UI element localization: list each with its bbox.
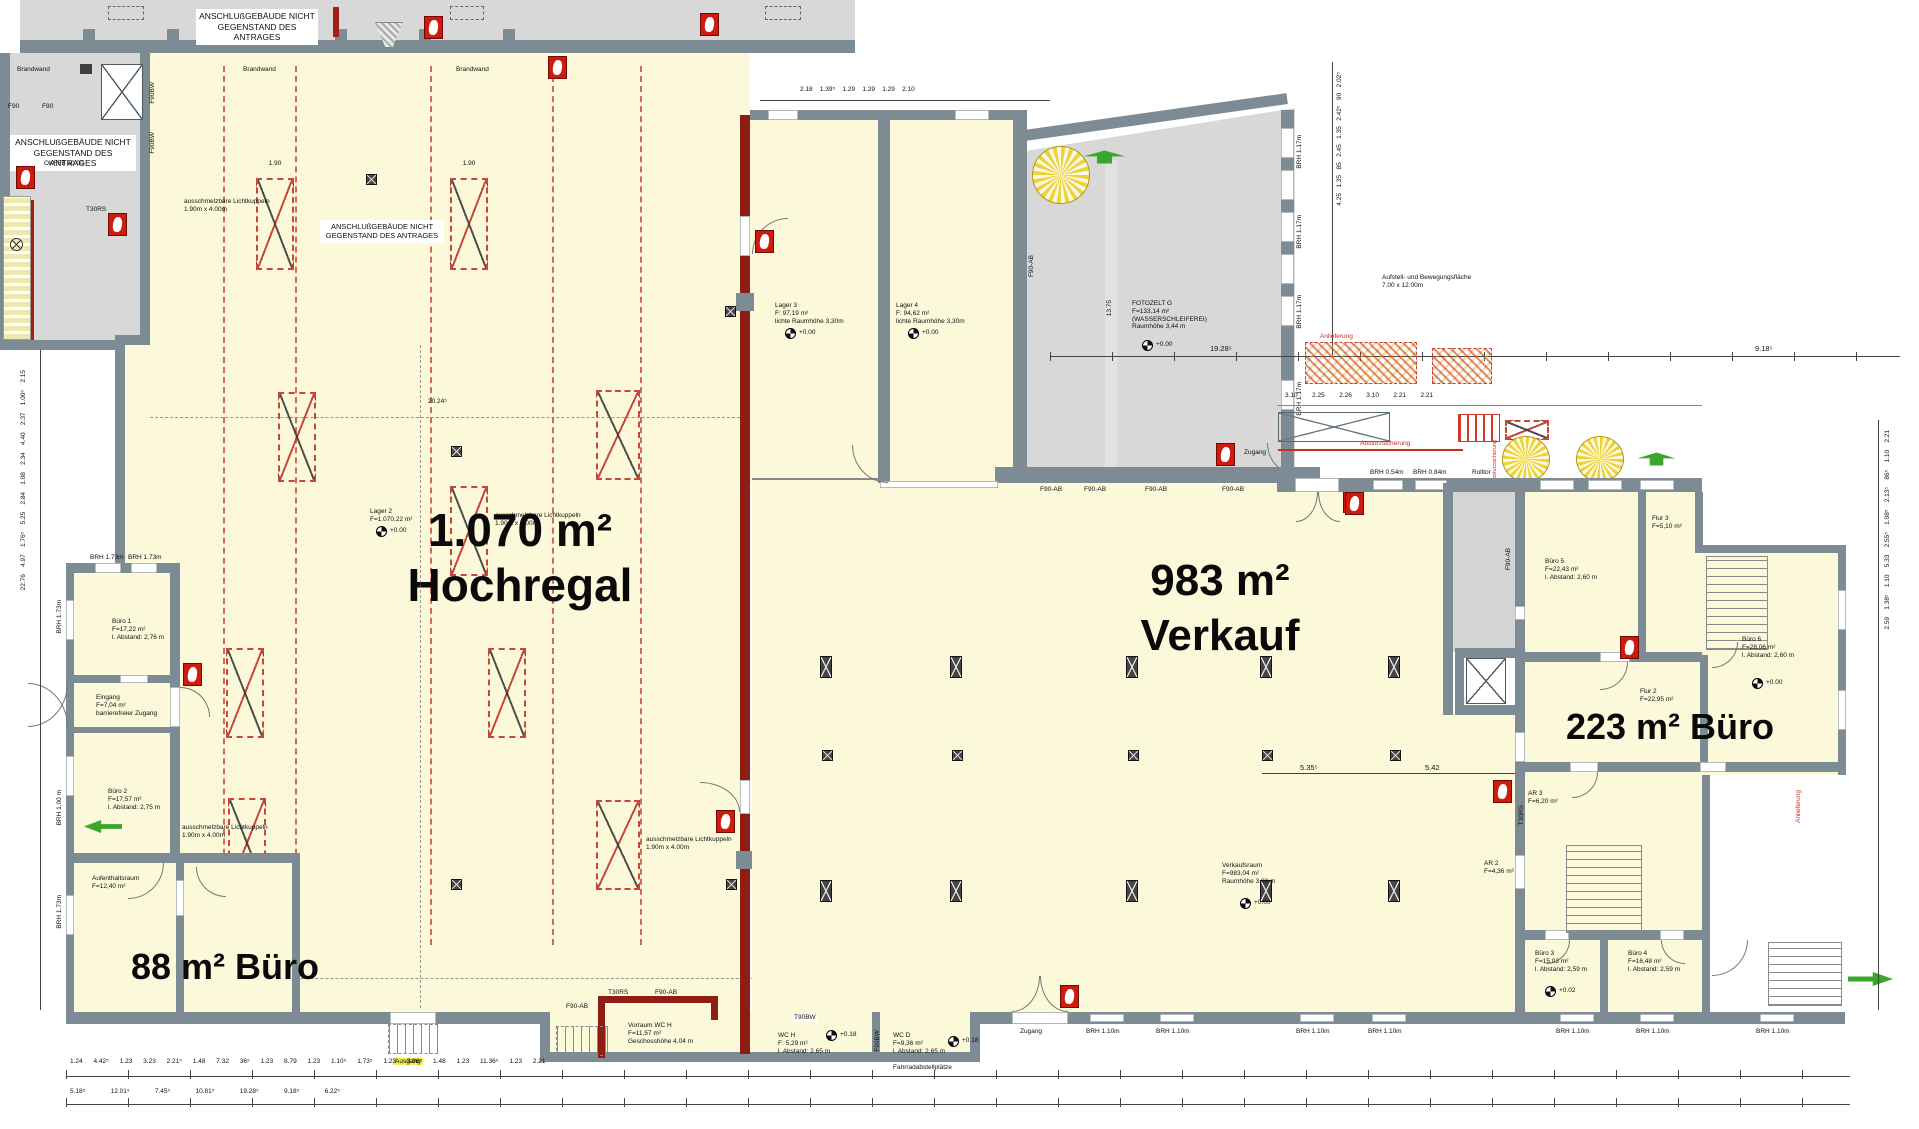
fire-extinguisher-icon [755, 230, 774, 253]
level-mark-icon [908, 328, 919, 339]
room-label-buero3: Büro 3 F=15,03 m² l. Abstand: 2,59 m [1535, 950, 1587, 973]
wing-wall [1702, 775, 1710, 1012]
window-label: BRH 1.10m [1296, 1028, 1330, 1036]
wall-pillar [736, 293, 754, 311]
anlieferung-label: Anlieferung [1320, 333, 1353, 341]
hatched-zone [3, 196, 31, 340]
wing-wall [1520, 762, 1845, 772]
dim-chain-bottom-1: 1.24 4.42⁵ 1.23 3.23 2.21⁵ 1.48 7.32 36⁵… [70, 1058, 545, 1066]
suite-north-wall [66, 563, 180, 573]
level-mark-icon [1545, 986, 1556, 997]
room-label-flur2: Flur 2 F=22,95 m² [1640, 688, 1673, 704]
area-label-hochregal-name: Hochregal [350, 558, 690, 612]
window-label: BRH 0.84m [1413, 469, 1447, 477]
fire-extinguisher-icon [1216, 443, 1235, 466]
window [1160, 1014, 1194, 1022]
wall-rating-label: T90BW [793, 1014, 817, 1022]
room-label-buero1: Büro 1 F=17,22 m² l. Abstand: 2,76 m [112, 618, 164, 641]
dim-line [66, 1076, 1850, 1077]
room-label-aufenthalt: Aufenthaltsraum F=12,40 m² [92, 875, 139, 891]
wc-wall [970, 1012, 980, 1060]
window [1838, 590, 1846, 630]
wing-wall [1638, 492, 1646, 652]
zugang-label: Zugang [1244, 449, 1266, 457]
window [1760, 1014, 1794, 1022]
wall-rating-label: F90 [42, 103, 53, 111]
walkway-south-wall [1277, 478, 1702, 492]
hatched-delivery-zone [1432, 348, 1492, 384]
vorraum-fire-wall [598, 996, 718, 1003]
column-icon [1390, 750, 1401, 761]
column-pair-icon [950, 656, 962, 678]
wing-wall [1695, 545, 1845, 553]
wall-rating-label: F90-AB [1222, 486, 1244, 494]
wall-rating-label: F90-AB [655, 989, 677, 997]
lager-partition-wall [878, 110, 890, 483]
light-dome-icon [226, 648, 264, 738]
vorraum-fire-wall [711, 996, 718, 1020]
room-partition [74, 853, 300, 863]
window [66, 895, 74, 935]
window [1588, 480, 1622, 490]
window [1540, 480, 1574, 490]
fire-wall-stub [333, 7, 339, 37]
room-label-wch: WC H F: 5,29 m² l. Abstand: 2,65 m [778, 1032, 830, 1055]
door-opening [740, 780, 750, 814]
wall-rating-label: F90BW [874, 1030, 882, 1052]
window-label: BRH 1.73m [90, 554, 124, 562]
wing-wall [1600, 935, 1608, 1012]
dim-chain: 3.10 2.25 2.26 3.10 2.21 2.21 [1285, 392, 1433, 400]
wall-pillar [83, 29, 95, 41]
wall-rating-label: F90BW [149, 82, 157, 104]
lichtkuppel-label: ausschmelzbare Lichtkuppeln 1.90m x 4.00… [182, 824, 268, 840]
hall-floor [300, 853, 750, 1012]
walkway-north-line [1277, 405, 1702, 406]
wall-rating-label: F90-AB [1145, 486, 1167, 494]
room-label-verkauf: Verkaufsraum F=983,04 m² Raumhöhe 3,00 m [1222, 862, 1275, 885]
zugang-label: Zugang [1020, 1028, 1042, 1036]
room-label-flur3: Flur 3 F=5,10 m² [1652, 515, 1682, 531]
area-label-buero-right: 223 m² Büro [1500, 706, 1840, 748]
absturzsicherung-label: Absturzsicherung [1492, 440, 1499, 483]
room-label-buero4: Büro 4 F=16,48 m² l. Abstand: 2,59 m [1628, 950, 1680, 973]
fire-extinguisher-icon [183, 663, 202, 686]
door-arc [1712, 940, 1748, 976]
light-dome-icon [256, 178, 294, 270]
room-partition [74, 727, 170, 733]
room-label-wcd: WC D F=9,36 m² l. Abstand: 2,65 m [893, 1032, 945, 1055]
wall-notch [1515, 606, 1525, 620]
fire-extinguisher-icon [548, 56, 567, 79]
door-opening [1012, 1012, 1068, 1024]
suite-east-wall [170, 727, 180, 853]
dim-ticks [66, 1098, 1850, 1107]
dim-label: 1.90 [450, 160, 488, 168]
shaft-symbol [101, 64, 143, 120]
exterior-stair [388, 1024, 438, 1054]
dim-label: 19.28⁵ [1210, 344, 1232, 353]
window [1373, 480, 1403, 490]
column-icon [1128, 750, 1139, 761]
column-pair-icon [1126, 880, 1138, 902]
fire-extinguisher-icon [424, 16, 443, 39]
anlieferung-label: Anlieferung [1795, 790, 1803, 823]
dim-label: 5.42 [1425, 763, 1440, 772]
column-icon [451, 879, 462, 890]
dim-line [66, 1104, 1850, 1105]
lager3-floor [750, 110, 878, 483]
door-opening [170, 687, 180, 727]
window [1281, 170, 1294, 200]
exterior-stair [1768, 942, 1842, 1006]
fire-extinguisher-icon [716, 810, 735, 833]
interior-stair [556, 1026, 608, 1056]
window-label: BRH 1.10m [1368, 1028, 1402, 1036]
dim-line [1878, 420, 1879, 1010]
dim-chain-right: 2.59 1.38⁵ 1.10 5.33 2.55⁵ 1.08⁵ 2.13⁵ 8… [1884, 430, 1892, 630]
floor-band [1105, 160, 1117, 475]
dim-line [1262, 773, 1520, 774]
wall-pillar [167, 29, 179, 41]
wall-pillar [503, 29, 515, 41]
spiral-stair-icon [1032, 146, 1090, 204]
exit-arrow-icon [1638, 453, 1676, 466]
lichtkuppel-label: ausschmelzbare Lichtkuppeln 1.90m x 4.00… [646, 836, 732, 852]
door-opening [176, 880, 184, 916]
wall-rating-label: F90-AB [1505, 548, 1513, 570]
suite-east-wall [170, 563, 180, 687]
room-label-eingang: Eingang F=7,04 m² barrierefreier Zugang [96, 694, 157, 717]
level-mark-icon [948, 1036, 959, 1047]
fire-extinguisher-icon [1620, 636, 1639, 659]
window-label: BRH 1.17m [1296, 135, 1304, 169]
grid-line [420, 345, 421, 1008]
wall-rating-label: F90-AB [1028, 255, 1036, 277]
stairwell [1566, 845, 1642, 933]
fire-extinguisher-icon [16, 166, 35, 189]
window-label: BRH 1.17m [1296, 295, 1304, 329]
suite-east-wall-lower [292, 853, 300, 1012]
fire-extinguisher-icon [108, 213, 127, 236]
room-label-buero5: Büro 5 F=22,43 m² l. Abstand: 2,60 m [1545, 558, 1597, 581]
room-label-ar3: AR 3 F=6,20 m² [1528, 790, 1558, 806]
column-icon [451, 446, 462, 457]
dashed-opening [108, 6, 144, 20]
wall-rating-label: F90-AB [1084, 486, 1106, 494]
grid-line [150, 417, 740, 418]
room-label-fotozelt: FOTOZELT G F=133,14 m² (WASSERSCHLEIFERE… [1132, 300, 1207, 331]
level-mark-icon [826, 1030, 837, 1041]
column-icon [1262, 750, 1273, 761]
room-label-lager3: Lager 3 F: 97,19 m² lichte Raumhöhe 3,30… [775, 302, 844, 325]
wing-wall [1695, 492, 1703, 552]
door-opening [1295, 478, 1339, 492]
window-label: BRH 1.73m [128, 554, 162, 562]
window [1300, 1014, 1334, 1022]
level-mark-icon [1142, 340, 1153, 351]
fire-wall [740, 1012, 750, 1054]
window [1560, 1014, 1594, 1022]
spiral-stair-icon [1502, 436, 1550, 482]
fire-wall-stub [31, 200, 34, 340]
room-label-lager4: Lager 4 F: 94,62 m² lichte Raumhöhe 3,30… [896, 302, 965, 325]
dim-label: 9.18⁵ [1755, 344, 1773, 353]
dim-line [760, 100, 1050, 101]
window [1281, 296, 1294, 326]
window [1281, 128, 1294, 158]
column-icon [822, 750, 833, 761]
area-label-buero-left: 88 m² Büro [95, 946, 355, 988]
column-icon [725, 306, 736, 317]
hatched-delivery-zone [1305, 342, 1417, 384]
door-opening [1515, 855, 1525, 889]
absturzsicherung-label: Absturzsicherung [1360, 440, 1410, 448]
dim-chain-bottom-2: 5.18⁵ 12.01⁵ 7.45⁵ 10.81⁵ 19.28⁵ 9.18⁵ 6… [70, 1088, 340, 1096]
conveyor-symbol [1278, 412, 1390, 442]
elevator-wall [1455, 648, 1464, 715]
window [66, 756, 74, 796]
window [66, 600, 74, 640]
window-label: BRH 1.17m [1296, 215, 1304, 249]
washer-icon [10, 238, 23, 251]
wing-wall [1443, 483, 1453, 715]
wall-rating-label: F90-AB [566, 1003, 588, 1011]
brandwand-label: Brandwand [17, 66, 50, 74]
brandwand-label: Brandwand [243, 66, 276, 74]
guard-rail [1278, 449, 1463, 451]
duct-symbol [80, 64, 92, 74]
column-pair-icon [820, 656, 832, 678]
spiral-stair-icon [1576, 436, 1624, 482]
window [131, 563, 157, 573]
window-label: BRH 1.10m [1636, 1028, 1670, 1036]
level-label: OKFFB ±0.00 [44, 160, 84, 168]
area-label-hochregal-value: 1.070 m² [350, 503, 690, 557]
room-label-vorraum: Vorraum WC H F=11,57 m² Geschosshöhe 4,0… [628, 1022, 693, 1045]
dashed-lane [295, 66, 297, 945]
stair-red [1458, 414, 1500, 442]
window-label: BRH 1.73m [56, 895, 64, 929]
light-dome-icon [450, 178, 488, 270]
window [768, 110, 798, 120]
room-label-buero6: Büro 6 F=28,06 m² l. Abstand: 2,60 m [1742, 636, 1794, 659]
elevator-icon [1466, 658, 1506, 704]
area-label-verkauf-name: Verkauf [1090, 611, 1350, 661]
fire-extinguisher-icon [1345, 492, 1364, 515]
brandwand-label: Brandwand [456, 66, 489, 74]
aufstellflaeche-label: Aufstell- und Bewegungsfläche 7.00 x 12.… [1382, 274, 1471, 290]
level-mark-icon [1752, 678, 1763, 689]
door-rating-label: T30RS [608, 989, 628, 997]
window [95, 563, 121, 573]
fire-extinguisher-icon [1493, 780, 1512, 803]
dim-line [40, 350, 41, 1010]
window-label: BRH 1.73m [56, 600, 64, 634]
wall-rating-label: F90-AB [1040, 486, 1062, 494]
south-wall [66, 1012, 555, 1024]
level-mark-icon [785, 328, 796, 339]
fire-extinguisher-icon [700, 13, 719, 36]
dim-ticks [66, 1070, 1850, 1079]
dim-label: 13.75 [1106, 300, 1114, 316]
light-dome-icon [278, 392, 316, 482]
window [1640, 1014, 1674, 1022]
hall-west-wall-mid [115, 340, 125, 563]
door-rating-label: T30RS [1518, 805, 1526, 825]
window-label: BRH 1.10m [1556, 1028, 1590, 1036]
annotation-box-top: ANSCHLUßGEBÄUDE NICHT GEGENSTAND DES ANT… [196, 9, 318, 45]
lager4-floor [890, 110, 1013, 483]
dim-label: 1.90 [256, 160, 294, 168]
window [1372, 1014, 1406, 1022]
wall-rating-label: F90 [8, 103, 19, 111]
column-pair-icon [1126, 656, 1138, 678]
door-rating-label: T30RS [86, 206, 106, 214]
window [1640, 480, 1674, 490]
dim-chain-left: 22.76 4.97 1.76⁵ 5.25 2.84 1.08 2.34 4.4… [20, 370, 28, 590]
window-label: BRH 1.10m [1756, 1028, 1790, 1036]
room-label-buero2: Büro 2 F=17,57 m² l. Abstand: 2,75 m [108, 788, 160, 811]
annotation-box-hall: ANSCHLUßGEBÄUDE NICHT GEGENSTAND DES ANT… [320, 220, 444, 243]
light-dome-icon [488, 648, 526, 738]
dim-label: 20.24⁵ [428, 398, 447, 406]
column-pair-icon [820, 880, 832, 902]
dim-chain: 2.18 1.39⁵ 1.29 1.29 1.29 2.10 [800, 86, 915, 94]
wall-rating-label: F90BW [149, 132, 157, 154]
exit-arrow-icon [1848, 972, 1893, 986]
door-opening [120, 675, 148, 683]
column-icon [726, 879, 737, 890]
exit-door-opening [390, 1012, 436, 1024]
dim-label: 5.35⁵ [1300, 763, 1318, 772]
column-pair-icon [1388, 656, 1400, 678]
light-dome-icon [596, 800, 640, 890]
column-pair-icon [1260, 656, 1272, 678]
dim-chain: 4.25 1.35 85 2.45 1.35 2.42⁵ 90 2.02⁵ [1336, 72, 1344, 206]
rolltor-label: Rolltor [1472, 469, 1491, 477]
stair-corridor-floor [1453, 492, 1515, 652]
top-strip-wall [20, 40, 855, 53]
floor-plan-canvas: ANSCHLUßGEBÄUDE NICHT GEGENSTAND DES ANT… [0, 0, 1919, 1129]
light-dome-icon [596, 390, 640, 480]
area-label-verkauf-value: 983 m² [1090, 556, 1350, 606]
window [1281, 254, 1294, 284]
dashed-opening [765, 6, 801, 20]
column-icon [952, 750, 963, 761]
window [1281, 212, 1294, 242]
verkauf-north-wall [995, 467, 1320, 483]
window-label: BRH 0.54m [1370, 469, 1404, 477]
lichtkuppel-label: ausschmelzbare Lichtkuppeln 1.90m x 4.00… [184, 198, 270, 214]
elevator-wall [1455, 648, 1517, 658]
level-mark-icon [1240, 898, 1251, 909]
door-opening [740, 216, 750, 256]
door-opening [1660, 930, 1684, 940]
door-opening [1570, 762, 1598, 772]
fotozelt-west-wall [1013, 150, 1027, 483]
column-pair-icon [1388, 880, 1400, 902]
window [955, 110, 989, 120]
column-icon [366, 174, 377, 185]
window [1090, 1014, 1124, 1022]
wide-opening [880, 481, 998, 488]
door-opening [1700, 762, 1726, 772]
window-label: BRH 1.00 m [56, 790, 64, 825]
room-label-ar2: AR 2 F=4,36 m² [1484, 860, 1514, 876]
window-label: BRH 1.10m [1086, 1028, 1120, 1036]
window-label: BRH 1.10m [1156, 1028, 1190, 1036]
dim-line [1332, 62, 1333, 357]
dashed-opening [450, 6, 484, 20]
column-pair-icon [950, 880, 962, 902]
threshold-line [752, 478, 880, 480]
